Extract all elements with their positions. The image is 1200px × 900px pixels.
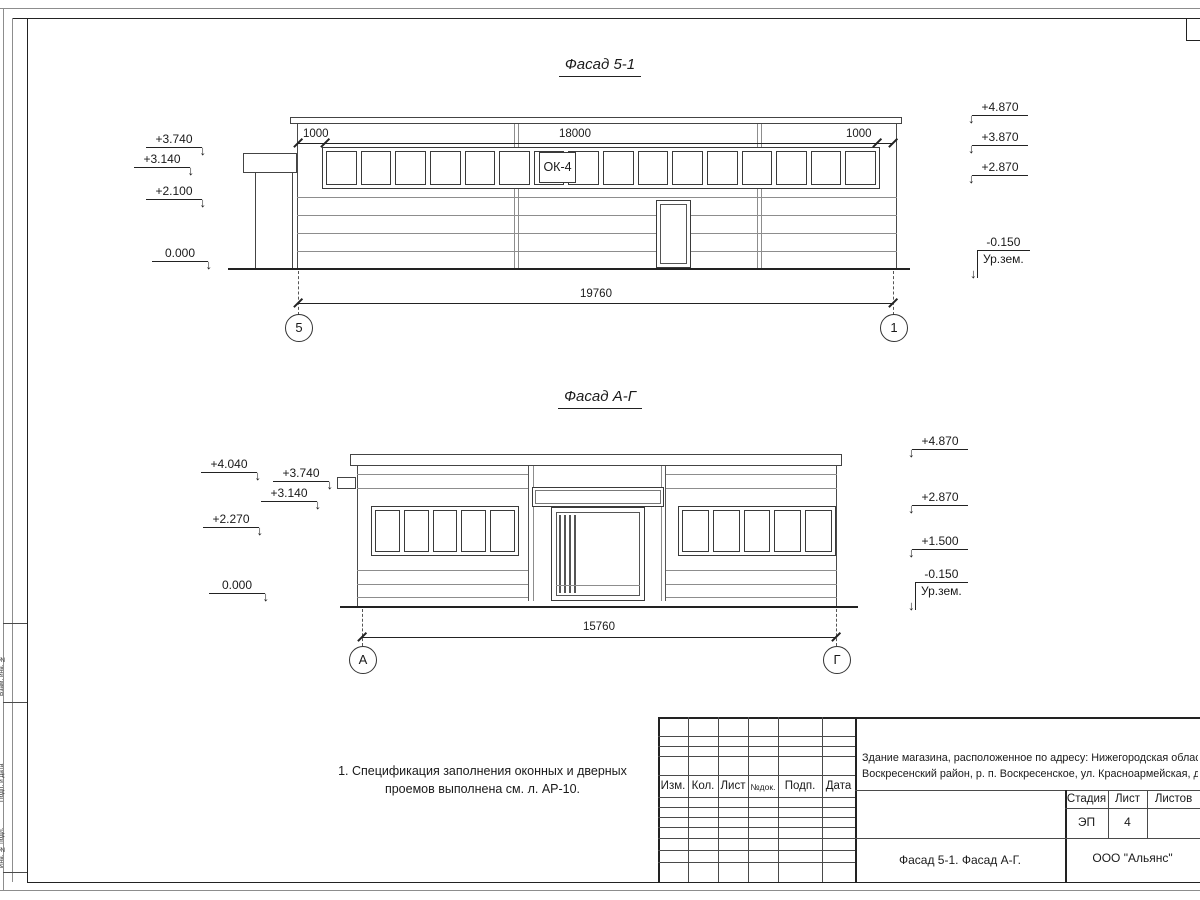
elevation-value: +3.140 xyxy=(134,152,190,168)
facade2-wall-right xyxy=(836,466,837,606)
sheets-label: Листов xyxy=(1147,793,1200,805)
elevation-mark: +4.870↓ xyxy=(912,434,968,450)
window-pane xyxy=(430,151,461,185)
facade2-axis-line-right xyxy=(836,609,837,646)
facade1-axis-line-right xyxy=(893,271,894,315)
col-podp: Подп. xyxy=(778,780,822,792)
titleblock-left xyxy=(658,717,660,882)
elevation-value: +1.500 xyxy=(912,534,968,550)
margin-label-2: Подп. и дата xyxy=(0,712,6,802)
facade2-canopy-inner xyxy=(535,490,661,504)
titleblock-grid-line xyxy=(658,797,855,798)
door-leaf xyxy=(559,515,561,593)
titleblock-grid-line xyxy=(658,838,855,839)
titleblock-grid-line xyxy=(658,862,855,863)
note-line-1: 1. Спецификация заполнения оконных и две… xyxy=(305,762,660,780)
col-list: Лист xyxy=(718,780,748,792)
axis-circle-g: Г xyxy=(823,646,851,674)
elevation-mark: +3.870↓ xyxy=(972,130,1028,146)
elevation-value: +3.740 xyxy=(273,466,329,482)
elevation-value: 0.000 xyxy=(152,246,208,262)
elevation-value: +4.870 xyxy=(972,100,1028,116)
margin-label-3: Инв. № подл. xyxy=(0,812,6,868)
ground-level-label: Ур.зем. ↓ xyxy=(977,251,1030,278)
facade2-window-band-left xyxy=(371,506,519,556)
titleblock-grid-line xyxy=(658,817,855,818)
address-line-2: Воскресенский район, р. п. Воскресенское… xyxy=(862,766,1198,782)
elevation-value: +3.870 xyxy=(972,130,1028,146)
frame-bottom xyxy=(27,882,1200,883)
window-pane xyxy=(461,510,486,552)
window-pane xyxy=(465,151,496,185)
facade1-ground-line xyxy=(228,268,910,270)
titleblock-grid-line xyxy=(748,717,749,882)
elevation-value: +4.040 xyxy=(201,457,257,473)
facade1-window-band xyxy=(322,147,880,189)
window-pane xyxy=(375,510,400,552)
facade1-annex-cap xyxy=(243,153,297,173)
titleblock-grid-line xyxy=(688,717,689,882)
titleblock-grid-line xyxy=(658,775,855,776)
corner-box-left xyxy=(1186,18,1187,40)
door-leaf xyxy=(569,515,571,593)
facade2-title: Фасад А-Г xyxy=(520,388,680,405)
stage-value: ЭП xyxy=(1065,815,1108,829)
margin-cell-line xyxy=(3,702,27,703)
elevation-mark: +3.140↓ xyxy=(261,486,317,502)
elevation-mark: +3.740↓ xyxy=(273,466,329,482)
elevation-value: +4.870 xyxy=(912,434,968,450)
facade1-dim-1000-left: 1000 xyxy=(303,128,329,140)
corner-box-bottom xyxy=(1186,40,1200,41)
note-line-2: проемов выполнена см. л. АР-10. xyxy=(305,780,660,798)
outer-border-bottom xyxy=(0,890,1200,891)
elevation-value: -0.150 xyxy=(977,235,1030,251)
window-pane xyxy=(326,151,357,185)
door-leaf xyxy=(564,515,566,593)
window-pane xyxy=(395,151,426,185)
titleblock-grid-line xyxy=(658,807,855,808)
window-pane xyxy=(713,510,740,552)
window-pane xyxy=(499,151,530,185)
elevation-arrow-icon: ↓ xyxy=(908,546,915,559)
elevation-mark: +3.140↓ xyxy=(134,152,190,168)
col-data: Дата xyxy=(822,780,855,792)
elevation-mark: 0.000↓ xyxy=(152,246,208,262)
elevation-arrow-icon: ↓ xyxy=(908,446,915,459)
facade1-axis-line-left xyxy=(298,271,299,315)
elevation-mark: +2.100↓ xyxy=(146,184,202,200)
window-pane xyxy=(490,510,515,552)
facade1-siding-line xyxy=(297,233,897,234)
window-pane xyxy=(672,151,703,185)
elevation-arrow-icon: ↓ xyxy=(968,172,975,185)
elevation-mark: +2.270↓ xyxy=(203,512,259,528)
facade1-dim-18000: 18000 xyxy=(475,128,675,140)
facade1-roof xyxy=(290,117,902,124)
margin-cell-line xyxy=(3,623,27,624)
elevation-mark: +3.740↓ xyxy=(146,132,202,148)
door-leaf xyxy=(574,515,576,593)
elevation-arrow-icon: ↓ xyxy=(257,524,264,537)
col-kol: Кол. xyxy=(688,780,718,792)
elevation-value: +2.870 xyxy=(972,160,1028,176)
margin-cell-line xyxy=(3,872,27,873)
drawing-sheet: Взам. инв. № Подп. и дата Инв. № подл. Ф… xyxy=(0,0,1200,900)
elevation-arrow-icon: ↓ xyxy=(968,112,975,125)
elevation-value: +2.870 xyxy=(912,490,968,506)
titleblock-grid-line xyxy=(658,850,855,851)
facade2-dim-total: 15760 xyxy=(499,621,699,633)
window-pane xyxy=(638,151,669,185)
axis-circle-a: А xyxy=(349,646,377,674)
elevation-arrow-icon: ↓ xyxy=(315,498,322,511)
window-pane xyxy=(776,151,807,185)
titleblock-line xyxy=(1065,808,1200,809)
facade2-canopy xyxy=(532,487,664,507)
facade1-title: Фасад 5-1 xyxy=(520,56,680,73)
elevation-arrow-icon: ↓ xyxy=(206,258,213,271)
elevation-arrow-icon: ↓ xyxy=(327,478,334,491)
facade2-axis-line-left xyxy=(362,609,363,646)
elevation-value: -0.150 xyxy=(915,567,968,583)
address-line-1: Здание магазина, расположенное по адресу… xyxy=(862,750,1198,766)
project-address: Здание магазина, расположенное по адресу… xyxy=(862,750,1198,782)
sheet-label: Лист xyxy=(1108,793,1147,805)
frame-top xyxy=(12,18,1200,19)
facade1-siding-line xyxy=(297,215,897,216)
frame-left xyxy=(27,18,28,882)
titleblock-grid-line xyxy=(718,717,719,882)
window-pane xyxy=(361,151,392,185)
facade2-window-band-right xyxy=(678,506,836,556)
elevation-value: +2.100 xyxy=(146,184,202,200)
window-pane xyxy=(404,510,429,552)
facade1-dim-1000-right: 1000 xyxy=(846,128,872,140)
window-pane xyxy=(707,151,738,185)
doc-title: Фасад 5-1. Фасад А-Г. xyxy=(855,853,1065,867)
titleblock-grid-line xyxy=(658,827,855,828)
facade1-siding-line xyxy=(297,251,897,252)
elevation-mark: +4.040↓ xyxy=(201,457,257,473)
elevation-arrow-icon: ↓ xyxy=(200,144,207,157)
elevation-value: +3.740 xyxy=(146,132,202,148)
window-pane xyxy=(682,510,709,552)
col-ndok: №док. xyxy=(748,782,778,792)
facade2-wall-left xyxy=(357,466,358,606)
elevation-value: +2.270 xyxy=(203,512,259,528)
ground-level-mark: -0.150 Ур.зем. ↓ xyxy=(977,235,1030,278)
axis-circle-5: 5 xyxy=(285,314,313,342)
window-pane xyxy=(603,151,634,185)
elevation-mark: +1.500↓ xyxy=(912,534,968,550)
window-pane xyxy=(811,151,842,185)
elevation-arrow-icon: ↓ xyxy=(200,196,207,209)
facade1-door xyxy=(656,200,691,268)
facade2-door-frame xyxy=(556,512,640,596)
stage-label: Стадия xyxy=(1065,793,1108,805)
window-pane xyxy=(433,510,458,552)
titleblock-grid-line xyxy=(658,746,855,747)
elevation-arrow-icon: ↓ xyxy=(255,469,262,482)
elevation-arrow-icon: ↓ xyxy=(908,598,915,613)
titleblock-top xyxy=(658,717,1200,719)
elevation-arrow-icon: ↓ xyxy=(263,590,270,603)
facade1-joint-line xyxy=(761,124,762,268)
elevation-mark: 0.000↓ xyxy=(209,578,265,594)
ground-level-label: Ур.зем. ↓ xyxy=(915,583,968,610)
titleblock-line xyxy=(855,838,1200,839)
company-name: ООО "Альянс" xyxy=(1065,851,1200,865)
window-pane xyxy=(742,151,773,185)
titleblock-grid-line xyxy=(658,736,855,737)
window-pane xyxy=(805,510,832,552)
elevation-arrow-icon: ↓ xyxy=(968,142,975,155)
elevation-value: +3.140 xyxy=(261,486,317,502)
facade2-roof xyxy=(350,454,842,466)
facade2-pipe xyxy=(337,477,356,489)
margin-divider-line xyxy=(12,18,13,882)
door-rail-line xyxy=(556,585,640,586)
elevation-mark: +4.870↓ xyxy=(972,100,1028,116)
elevation-arrow-icon: ↓ xyxy=(188,164,195,177)
facade1-dim-line xyxy=(298,303,893,304)
margin-label-1: Взам. инв. № xyxy=(0,630,6,696)
elevation-arrow-icon: ↓ xyxy=(908,502,915,515)
facade1-joint-line xyxy=(514,124,515,268)
facade2-ground-line xyxy=(340,606,858,608)
ground-level-mark: -0.150 Ур.зем. ↓ xyxy=(915,567,968,610)
window-pane xyxy=(845,151,876,185)
ok4-label: ОК-4 xyxy=(539,152,576,183)
titleblock-line xyxy=(855,790,1200,791)
facade2-dim-line xyxy=(362,637,836,638)
facade1-dim-total: 19760 xyxy=(496,288,696,300)
col-izm: Изм. xyxy=(658,780,688,792)
elevation-arrow-icon: ↓ xyxy=(970,266,977,281)
facade2-door xyxy=(551,507,645,601)
facade1-siding-line xyxy=(297,197,897,198)
elevation-mark: +2.870↓ xyxy=(972,160,1028,176)
titleblock-grid-line xyxy=(658,756,855,757)
sheet-value: 4 xyxy=(1108,815,1147,829)
facade1-joint-line xyxy=(757,124,758,268)
facade1-door-inner xyxy=(660,204,687,264)
window-pane xyxy=(774,510,801,552)
titleblock-grid-line xyxy=(778,717,779,882)
elevation-mark: +2.870↓ xyxy=(912,490,968,506)
note-text: 1. Спецификация заполнения оконных и две… xyxy=(305,762,660,798)
facade1-joint-line xyxy=(518,124,519,268)
elevation-value: 0.000 xyxy=(209,578,265,594)
window-pane xyxy=(744,510,771,552)
facade1-annex-column xyxy=(255,173,293,268)
facade1-top-dim-line xyxy=(298,143,893,144)
titleblock-grid-line xyxy=(822,717,823,882)
outer-border-top xyxy=(0,8,1200,9)
axis-circle-1: 1 xyxy=(880,314,908,342)
